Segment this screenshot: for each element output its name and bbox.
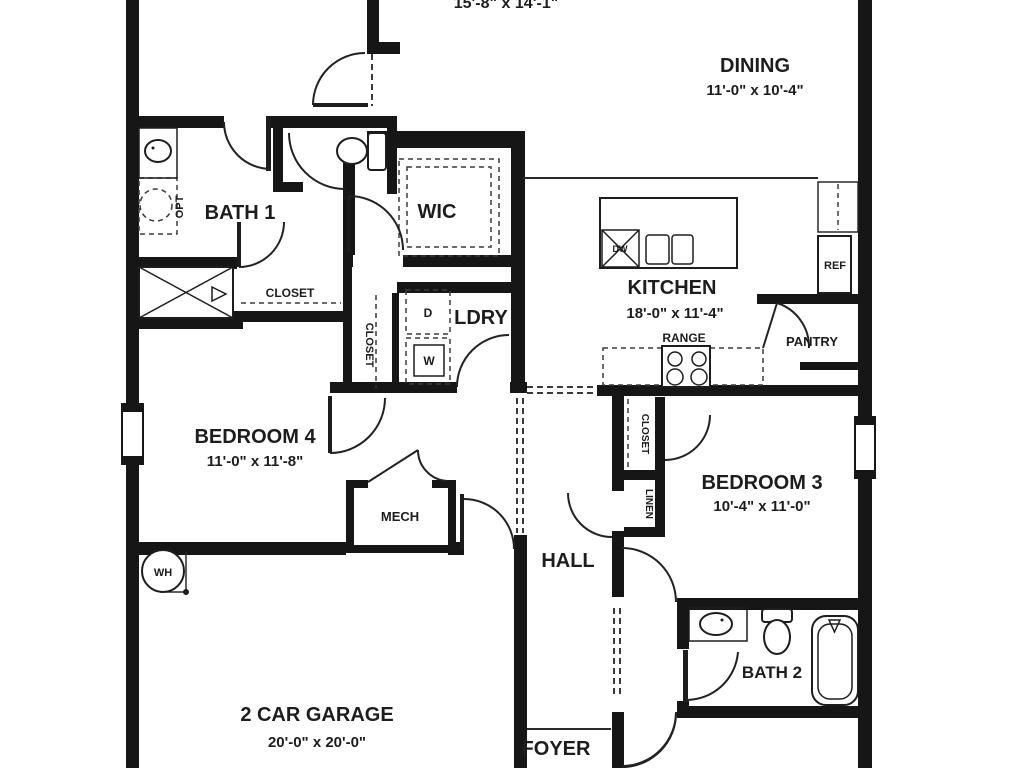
window-right (855, 417, 875, 478)
great-room-dims-clipped: 15'-8" x 14'-1" (454, 0, 559, 12)
dishwasher-label: DW (613, 244, 628, 254)
room-label-ldry: LDRY (454, 307, 508, 329)
room-label-kitchen: KITCHEN (628, 277, 717, 299)
floor-plan: 15'-8" x 14'-1" DINING 11'-0" x 10'-4" B… (0, 0, 1024, 768)
hall-closet-label: CLOSET (363, 323, 375, 368)
room-label-bath1: BATH 1 (205, 202, 276, 224)
room-label-mech: MECH (381, 509, 419, 524)
kitchen-island (600, 198, 737, 268)
bath1-shower-box (139, 267, 233, 318)
window-left (122, 404, 143, 464)
washer-label: W (423, 354, 435, 368)
opt-label: OPT (174, 195, 186, 218)
water-heater-label: WH (154, 567, 172, 579)
room-label-bath2: BATH 2 (742, 663, 802, 682)
bed3-closet-label: CLOSET (639, 414, 650, 455)
room-label-foyer: FOYER (522, 738, 591, 760)
walls (126, 0, 872, 768)
bath1-sink-icon (139, 128, 177, 178)
room-label-bedroom4: BEDROOM 4 (194, 426, 316, 448)
room-dims-bedroom3: 10'-4" x 11'-0" (713, 498, 810, 515)
fridge-label: REF (824, 260, 846, 272)
range-icon (662, 346, 710, 387)
room-dims-dining: 11'-0" x 10'-4" (706, 82, 803, 99)
linen-label: LINEN (643, 489, 654, 519)
floor-plan-drawing: 15'-8" x 14'-1" DINING 11'-0" x 10'-4" B… (0, 0, 1024, 768)
room-dims-bedroom4: 11'-0" x 11'-8" (207, 453, 303, 470)
bath2-toilet-icon (762, 609, 792, 654)
room-label-wic: WIC (418, 201, 457, 223)
door-leaf (313, 103, 368, 107)
room-label-hall: HALL (541, 550, 594, 572)
room-label-garage: 2 CAR GARAGE (240, 704, 393, 726)
bathtub-icon (812, 616, 858, 705)
room-label-pantry: PANTRY (786, 334, 838, 349)
room-label-bedroom3: BEDROOM 3 (701, 472, 822, 494)
dryer-label: D (424, 306, 433, 320)
bath2-sink-icon (689, 608, 747, 641)
room-dims-garage: 20'-0" x 20'-0" (268, 734, 366, 751)
range-label: RANGE (662, 331, 705, 345)
room-dims-kitchen: 18'-0" x 11'-4" (626, 305, 723, 322)
bath1-closet-label: CLOSET (266, 286, 315, 300)
room-label-dining: DINING (720, 55, 790, 77)
